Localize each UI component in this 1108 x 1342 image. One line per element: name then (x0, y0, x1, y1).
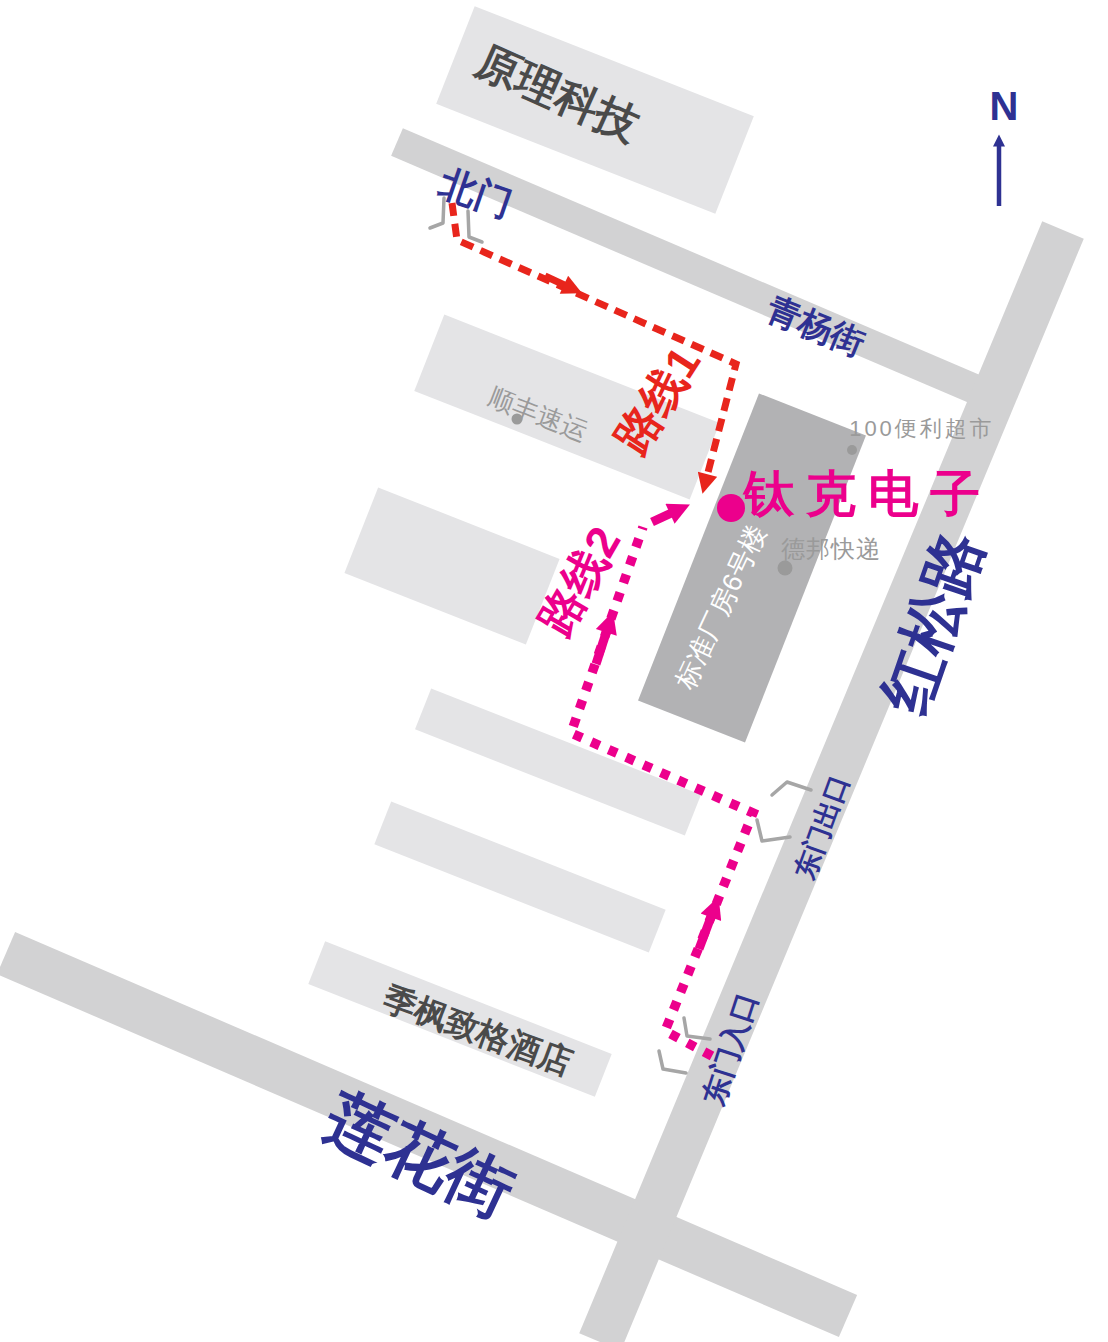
convenience-store-location-dot (847, 445, 857, 455)
campus-route-map: 青杨街 红松路 莲花街 原理科技 顺丰速运 100便利超市 德邦快递 标准厂房6… (0, 0, 1108, 1342)
destination-label: 钛克电子 (742, 466, 992, 522)
building-unlabeled-3 (374, 802, 665, 953)
building-unlabeled-1 (344, 487, 559, 644)
route2-arrow-middle (596, 624, 609, 664)
street-label-lianhua: 莲花街 (314, 1079, 526, 1230)
destination-dot (717, 494, 745, 522)
building-unlabeled-2 (415, 688, 701, 835)
route2-arrow-bottom (699, 909, 714, 949)
place-label-debang: 德邦快递 (781, 535, 881, 562)
place-label-convenience-store: 100便利超市 (849, 416, 995, 441)
street-label-qingyang: 青杨街 (761, 289, 871, 363)
map-canvas: 青杨街 红松路 莲花街 原理科技 顺丰速运 100便利超市 德邦快递 标准厂房6… (0, 0, 1108, 1342)
shunfeng-location-dot (512, 414, 523, 425)
compass: N (990, 84, 1019, 206)
compass-north-label: N (990, 84, 1019, 128)
debang-location-dot (778, 561, 793, 576)
gate-label-north: 北门 (433, 162, 517, 225)
route2-arrow-end (652, 510, 678, 522)
